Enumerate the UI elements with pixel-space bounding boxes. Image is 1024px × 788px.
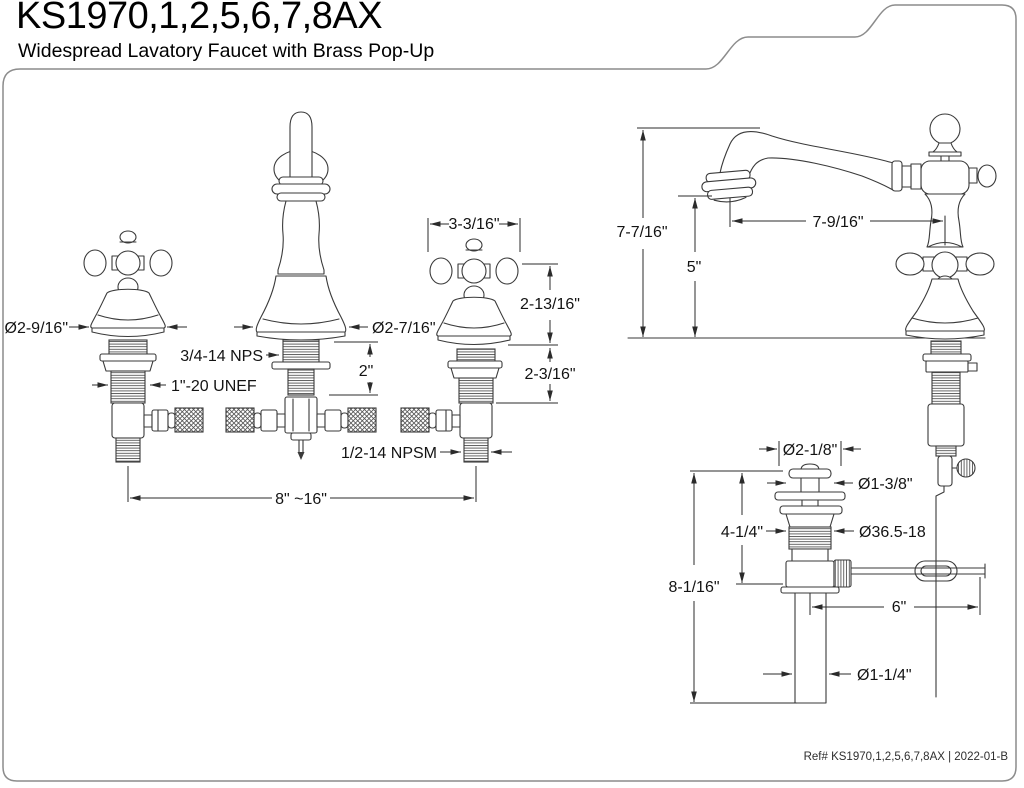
dim-spread: 8" ~16": [128, 466, 476, 508]
dim-label-flange-diameter: Ø2-1/8": [783, 442, 838, 459]
dim-label-spout-shank-thread: 3/4-14 NPS: [180, 348, 263, 365]
dim-label-spout-reach: 7-9/16": [812, 214, 863, 231]
dim-label-tailpiece-diameter: Ø1-1/4": [857, 667, 912, 684]
right-handle-unit: [401, 239, 518, 462]
pivot-rod: [851, 564, 985, 578]
lift-rod-knob: [957, 459, 975, 477]
dim-label-handle-diameter: Ø2-9/16": [5, 320, 69, 337]
dim-label-rod-length: 6": [892, 599, 907, 616]
dim-label-handle-width: 3-3/16": [448, 216, 499, 233]
dim-label-supply-thread: 1/2-14 NPSM: [341, 445, 437, 462]
dim-label-spout-outlet-height: 5": [687, 259, 702, 276]
dim-tailpiece-diameter: Ø1-1/4": [763, 667, 912, 684]
dim-label-handle-shank-length: 2-3/16": [524, 366, 575, 383]
dim-label-upper-length: 4-1/4": [721, 524, 763, 541]
braided-hose: [226, 408, 254, 432]
dim-label-body-thread: Ø36.5-18: [859, 524, 926, 541]
dim-label-overall-length: 8-1/16": [668, 579, 719, 596]
dim-label-handle-shank-thread: 1"-20 UNEF: [171, 378, 257, 395]
dim-spout-reach: 7-9/16": [730, 198, 943, 231]
braided-hose: [348, 408, 376, 432]
spec-sheet: KS1970,1,2,5,6,7,8AX Widespread Lavatory…: [0, 0, 1024, 788]
dim-upper-length: 4-1/4": [690, 471, 783, 584]
dim-label-handle-height: 2-13/16": [520, 296, 580, 313]
lift-rod: [936, 486, 944, 697]
dim-label-spout-shank-length: 2": [359, 363, 374, 380]
dim-handle-shank-length: 2-3/16": [496, 348, 576, 403]
technical-drawing: Ø2-9/16" 3-3/16" Ø2-7/16" 3/4-14 NPS: [0, 0, 1024, 788]
dim-stopper-diameter: Ø1-3/8": [767, 476, 913, 493]
side-faucet: [701, 114, 996, 697]
dim-label-stopper-diameter: Ø1-3/8": [858, 476, 913, 493]
front-view: Ø2-9/16" 3-3/16" Ø2-7/16" 3/4-14 NPS: [5, 112, 580, 508]
dim-spout-shank-length: 2": [329, 342, 378, 395]
dim-spout-shank-thread: 3/4-14 NPS: [180, 348, 279, 365]
dim-spout-outlet-height: 5": [678, 196, 712, 337]
dim-label-spout-base-diameter: Ø2-7/16": [372, 320, 436, 337]
spout-unit: [226, 112, 376, 460]
braided-hose: [175, 408, 203, 432]
sheet-border: [3, 5, 1016, 781]
dim-label-overall-height: 7-7/16": [616, 224, 667, 241]
left-handle-unit: [84, 231, 203, 462]
pivot-nut: [834, 560, 851, 587]
dim-label-spread: 8" ~16": [275, 491, 327, 508]
braided-hose: [401, 408, 429, 432]
reference-number: Ref# KS1970,1,2,5,6,7,8AX | 2022-01-B: [804, 751, 1008, 763]
dim-handle-height: 2-13/16": [508, 264, 580, 345]
dim-overall-length: 8-1/16": [668, 473, 797, 703]
dim-flange-diameter: Ø2-1/8": [759, 441, 861, 466]
